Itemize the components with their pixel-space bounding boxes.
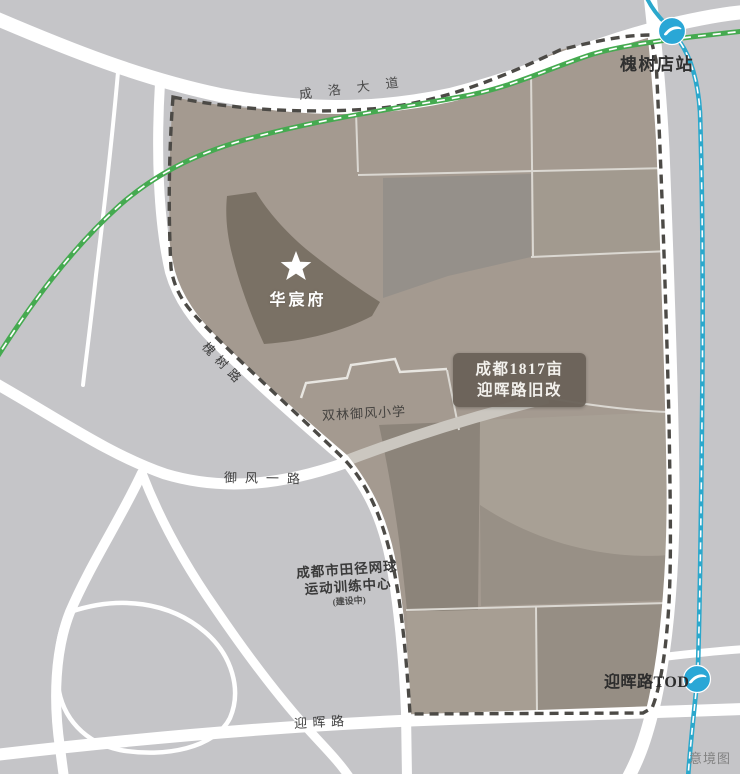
redevelopment-label-line2: 迎晖路旧改 — [477, 380, 562, 401]
station-label-yinghui-tod: 迎晖路TOD — [604, 668, 689, 692]
station-label-huaishudian: 槐树店站 — [620, 50, 694, 75]
parcel — [533, 166, 670, 256]
parcel — [407, 608, 537, 716]
huaishudian-station-badge — [659, 18, 686, 45]
map-caption: 意境图 — [689, 748, 731, 767]
redevelopment-label-box: 成都1817亩 迎晖路旧改 — [453, 353, 586, 407]
concept-map: 成洛大道 槐树店站 华宸府 成都1817亩 迎晖路旧改 双林御风小学 槐树路 御… — [0, 0, 740, 774]
redevelopment-label-line1: 成都1817亩 — [475, 359, 563, 380]
road-label-yinghui: 迎晖路 — [294, 710, 350, 732]
sports-center-label: 成都市田径网球 运动训练中心 (建设中) — [296, 559, 400, 611]
map-canvas — [0, 0, 740, 774]
project-name-label: 华宸府 — [269, 286, 326, 310]
road-label-yufeng-yi: 御风一路 — [224, 467, 308, 487]
metro-logo-icon — [659, 18, 686, 45]
